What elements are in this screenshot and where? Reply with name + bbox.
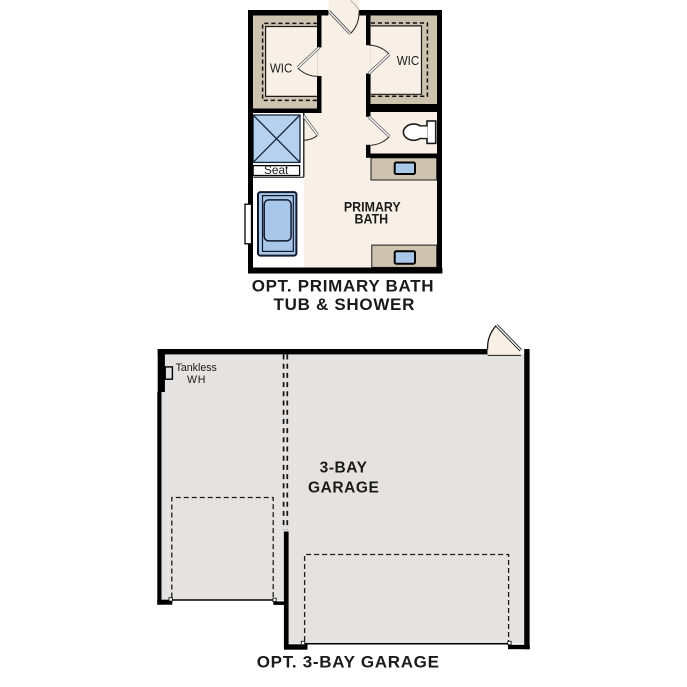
svg-text:3-BAY: 3-BAY [320, 460, 368, 477]
svg-text:Tankless: Tankless [176, 362, 217, 374]
svg-text:TUB & SHOWER: TUB & SHOWER [274, 295, 416, 314]
svg-text:GARAGE: GARAGE [308, 480, 379, 497]
svg-text:Seat: Seat [264, 163, 289, 177]
svg-text:WIC: WIC [270, 61, 293, 76]
svg-text:WIC: WIC [397, 54, 420, 69]
svg-text:WH: WH [187, 374, 206, 386]
svg-text:OPT. PRIMARY BATH: OPT. PRIMARY BATH [252, 277, 435, 296]
svg-text:BATH: BATH [355, 211, 389, 227]
svg-text:OPT. 3-BAY GARAGE: OPT. 3-BAY GARAGE [257, 653, 440, 672]
